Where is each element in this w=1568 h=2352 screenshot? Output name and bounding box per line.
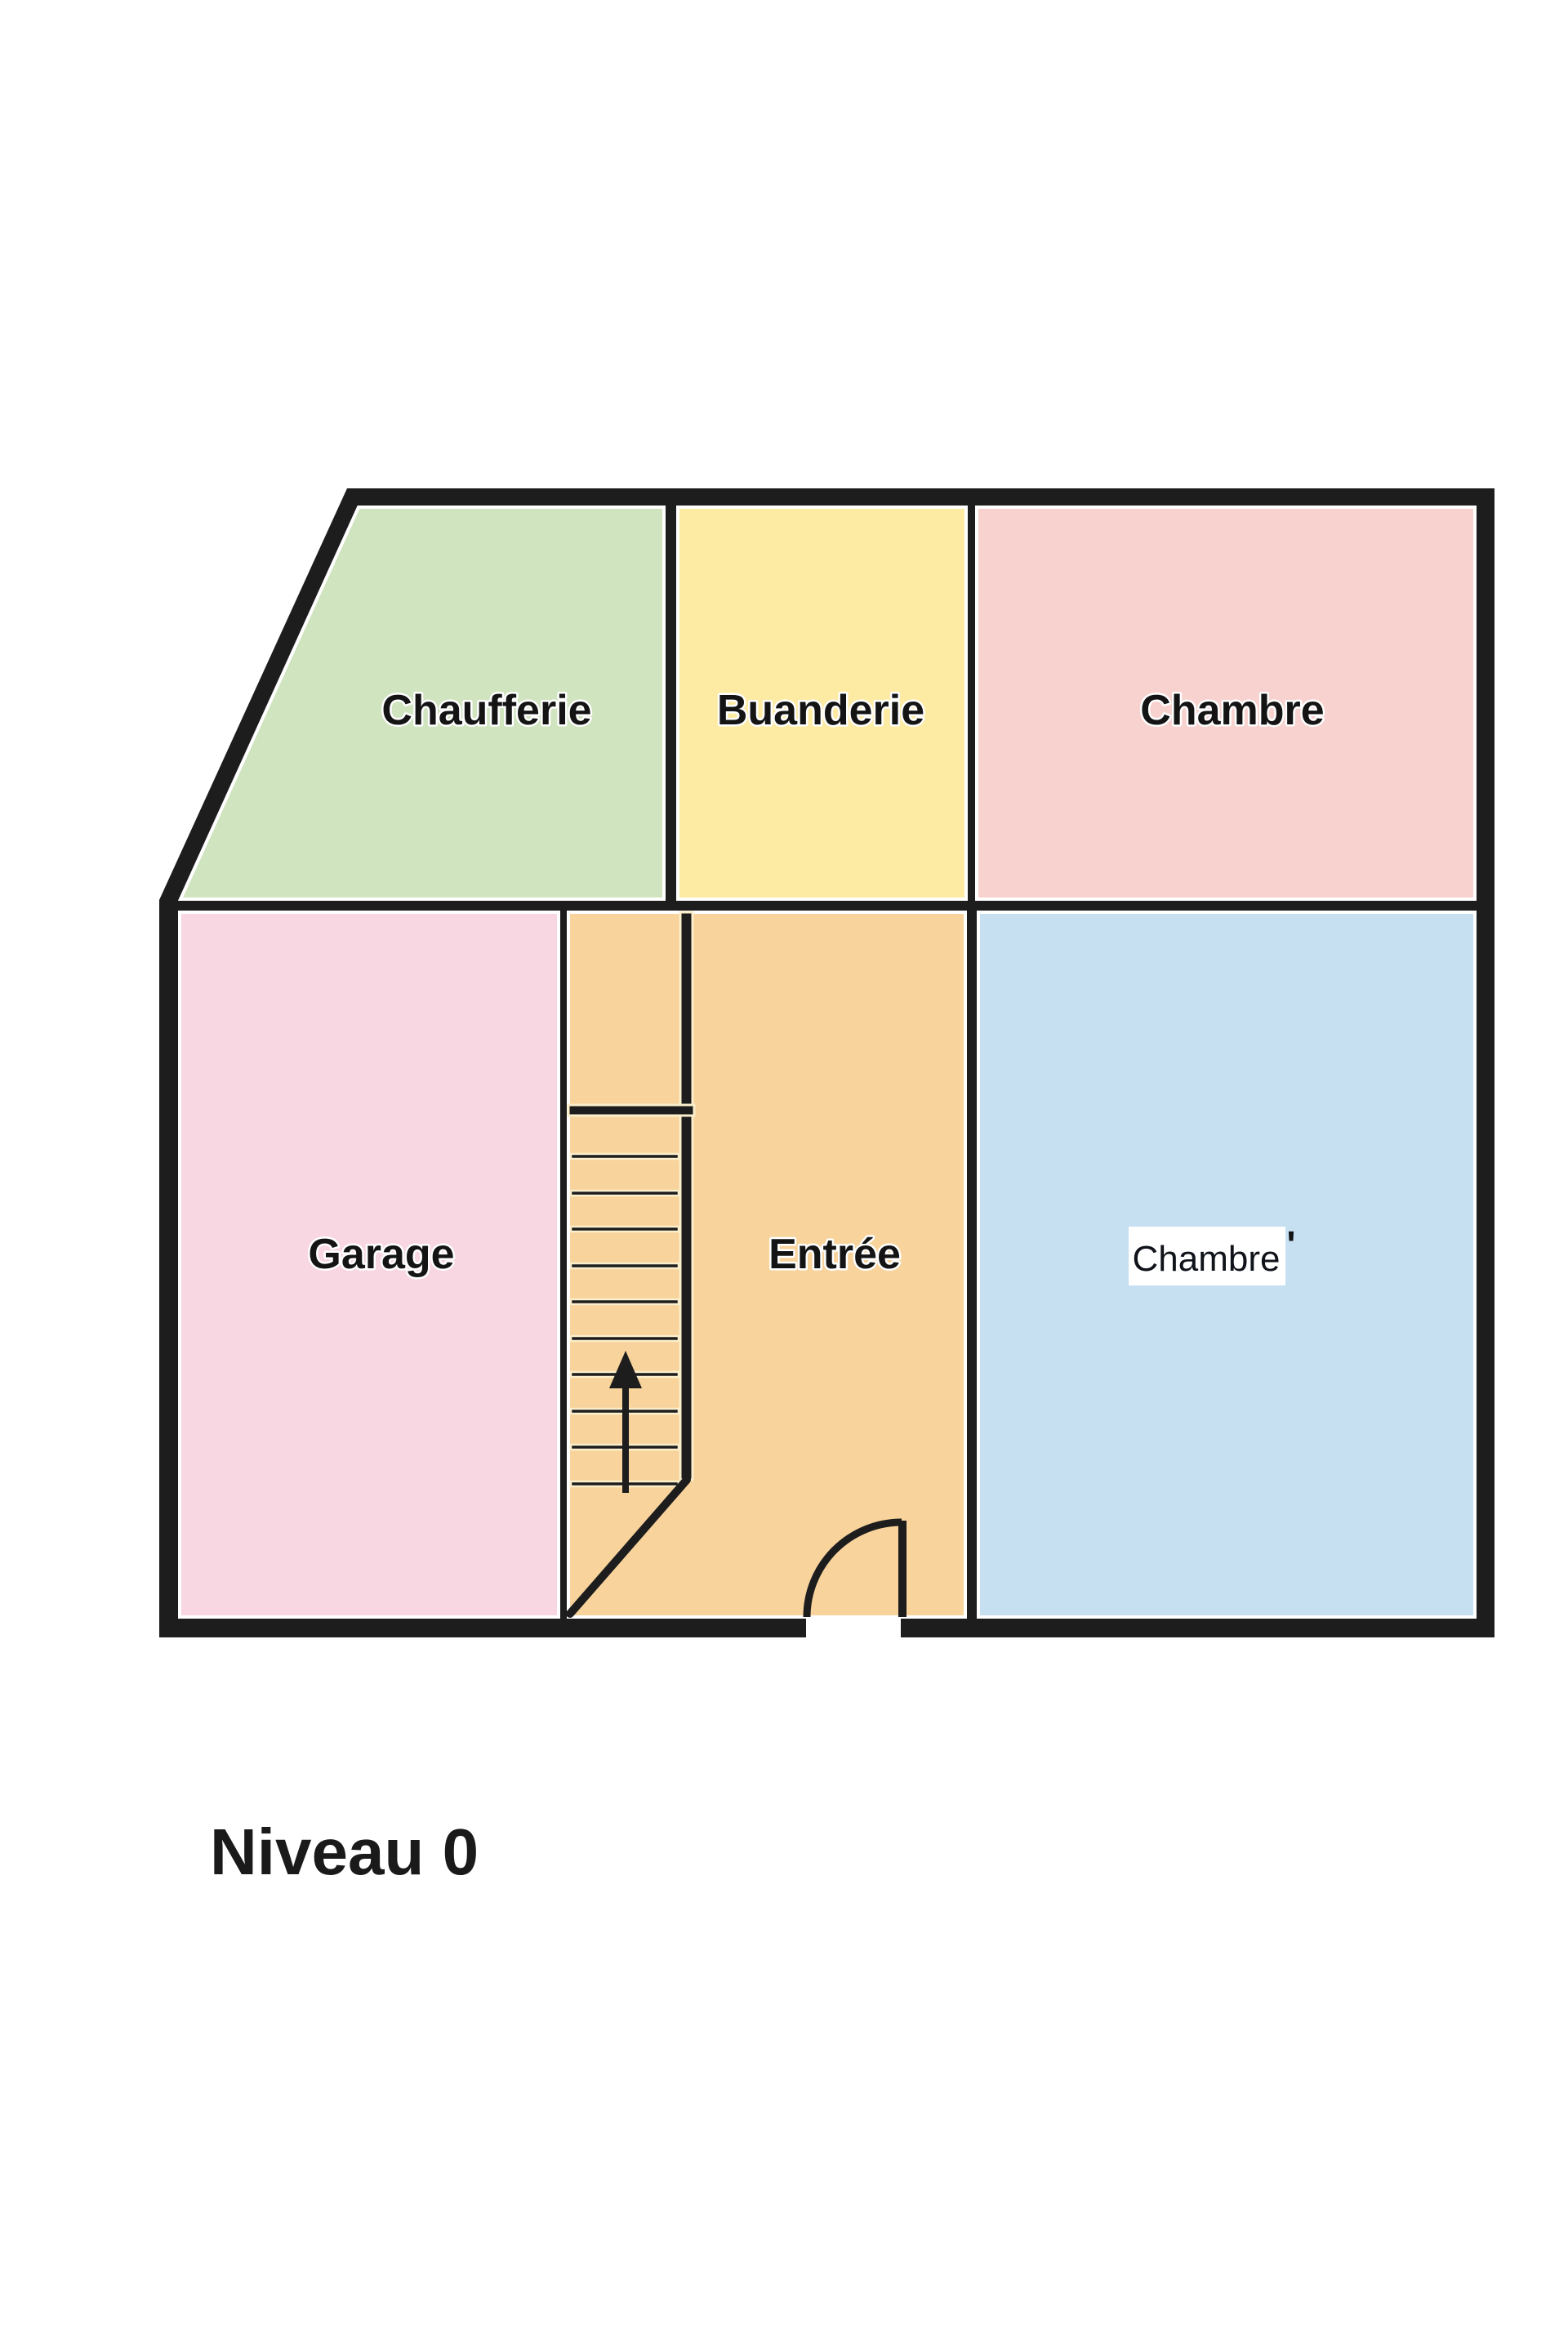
label-entree: Entrée — [768, 1231, 901, 1278]
floorplan: Chaufferie Buanderie Chambre Garage Entr… — [0, 0, 1568, 2352]
stair-side-wall — [680, 912, 693, 1480]
floorplan-page: Chaufferie Buanderie Chambre Garage Entr… — [0, 0, 1568, 2352]
stair-tread — [571, 1336, 679, 1341]
label-garage: Garage — [308, 1231, 454, 1278]
door-opening — [806, 1616, 901, 1639]
stair-landing-edge — [568, 1105, 694, 1116]
label-chambre-top: Chambre — [1140, 687, 1324, 734]
stair-tread — [571, 1299, 679, 1304]
level-title: Niveau 0 — [210, 1815, 479, 1888]
stair-tread — [571, 1191, 679, 1196]
stair-tread — [571, 1154, 679, 1159]
label-chaufferie: Chaufferie — [381, 687, 591, 734]
stair-arrow-stem — [622, 1386, 629, 1493]
stair-tread — [571, 1227, 679, 1232]
stair-tread — [571, 1263, 679, 1268]
door-leaf — [898, 1521, 906, 1617]
stray-apostrophe-mark: ' — [1287, 1223, 1296, 1266]
label-chambre-blue: Chambre — [1133, 1239, 1281, 1279]
label-buanderie: Buanderie — [717, 687, 924, 734]
